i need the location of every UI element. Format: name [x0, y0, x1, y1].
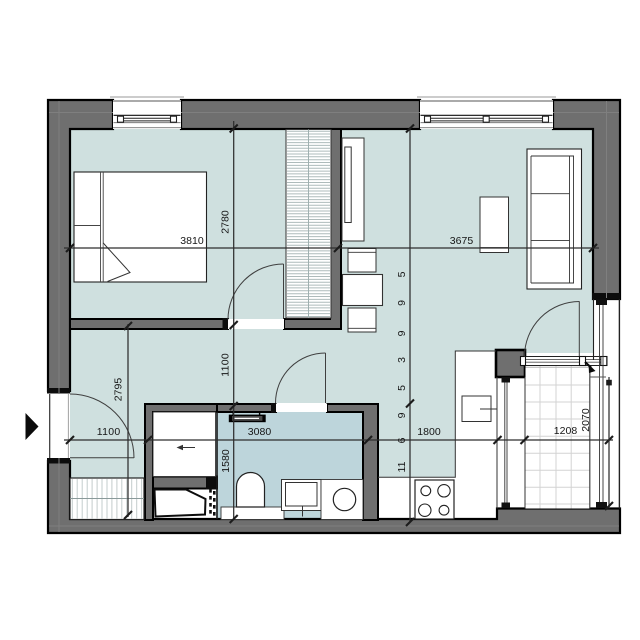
svg-text:5: 5 — [396, 385, 408, 391]
svg-text:1800: 1800 — [417, 426, 441, 438]
svg-text:9: 9 — [396, 330, 408, 336]
svg-text:2795: 2795 — [113, 378, 125, 402]
svg-text:5: 5 — [396, 271, 408, 277]
svg-text:9: 9 — [396, 412, 408, 418]
svg-text:2070: 2070 — [580, 408, 592, 432]
svg-text:11: 11 — [396, 461, 408, 472]
svg-text:9: 9 — [396, 300, 408, 306]
svg-text:1100: 1100 — [220, 353, 232, 377]
svg-text:1208: 1208 — [554, 425, 578, 437]
svg-text:2780: 2780 — [220, 210, 232, 234]
svg-text:1100: 1100 — [97, 426, 121, 438]
svg-text:3675: 3675 — [450, 235, 474, 247]
svg-text:6: 6 — [396, 437, 408, 443]
svg-text:3080: 3080 — [248, 426, 272, 438]
svg-text:3810: 3810 — [180, 235, 204, 247]
svg-text:3: 3 — [396, 357, 408, 363]
svg-text:1580: 1580 — [220, 449, 232, 473]
